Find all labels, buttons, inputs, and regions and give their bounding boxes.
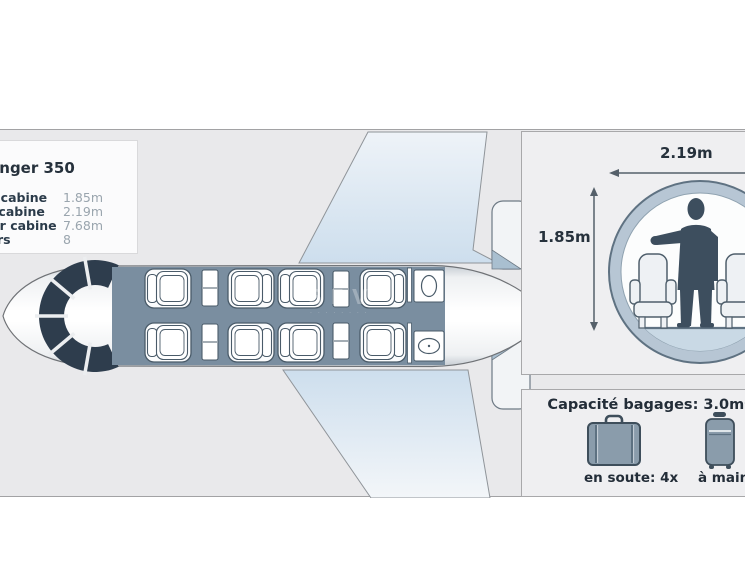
spec-value: 7.68m	[63, 218, 103, 233]
wing-bottom	[283, 370, 490, 498]
suitcase-icon	[588, 416, 640, 465]
watermark: SEV · · · · · · · ·	[308, 285, 376, 317]
spec-row-length: Longueur cabine 7.68m	[0, 218, 139, 232]
cabin-width-label: 2.19m	[660, 144, 713, 162]
lavatory-sink	[414, 331, 444, 361]
baggage-panel: Capacité bagages: 3.0m³ en soute: 4x à m…	[521, 389, 745, 497]
svg-text:SEV: SEV	[308, 285, 376, 309]
spec-value: 8	[63, 232, 71, 247]
spec-row-passengers: Passagers 8	[0, 232, 139, 246]
spec-label: Largeur cabine	[0, 204, 45, 219]
lavatory-wall-top	[408, 268, 412, 302]
spec-value: 1.85m	[63, 190, 103, 205]
cross-section-drawing	[522, 132, 745, 374]
spec-row-height: Hauteur cabine 1.85m	[0, 190, 139, 204]
spec-label: Passagers	[0, 232, 11, 247]
lavatory-toilet	[414, 270, 444, 302]
aircraft-spec-panel: Challenger 350 Hauteur cabine 1.85m Larg…	[0, 140, 138, 254]
cabin-height-label: 1.85m	[538, 228, 591, 246]
cabin-cross-section-panel: 2.19m 1.85m	[521, 131, 745, 375]
spec-value: 2.19m	[63, 204, 103, 219]
fuselage-ring	[607, 181, 745, 374]
spec-label: Longueur cabine	[0, 218, 57, 233]
hold-baggage-label: en soute: 4x	[584, 470, 678, 486]
carry-on-icon	[706, 412, 734, 469]
aircraft-name: Challenger 350	[0, 159, 75, 177]
height-arrow	[590, 187, 598, 331]
wing-top	[299, 132, 498, 263]
hand-baggage-label: à main: 4x	[698, 470, 745, 486]
spec-row-width: Largeur cabine 2.19m	[0, 204, 139, 218]
lavatory-wall-bottom	[408, 323, 412, 363]
svg-text:· · · · · · · ·: · · · · · · · ·	[310, 310, 369, 317]
spec-label: Hauteur cabine	[0, 190, 47, 205]
width-arrow	[609, 169, 745, 177]
